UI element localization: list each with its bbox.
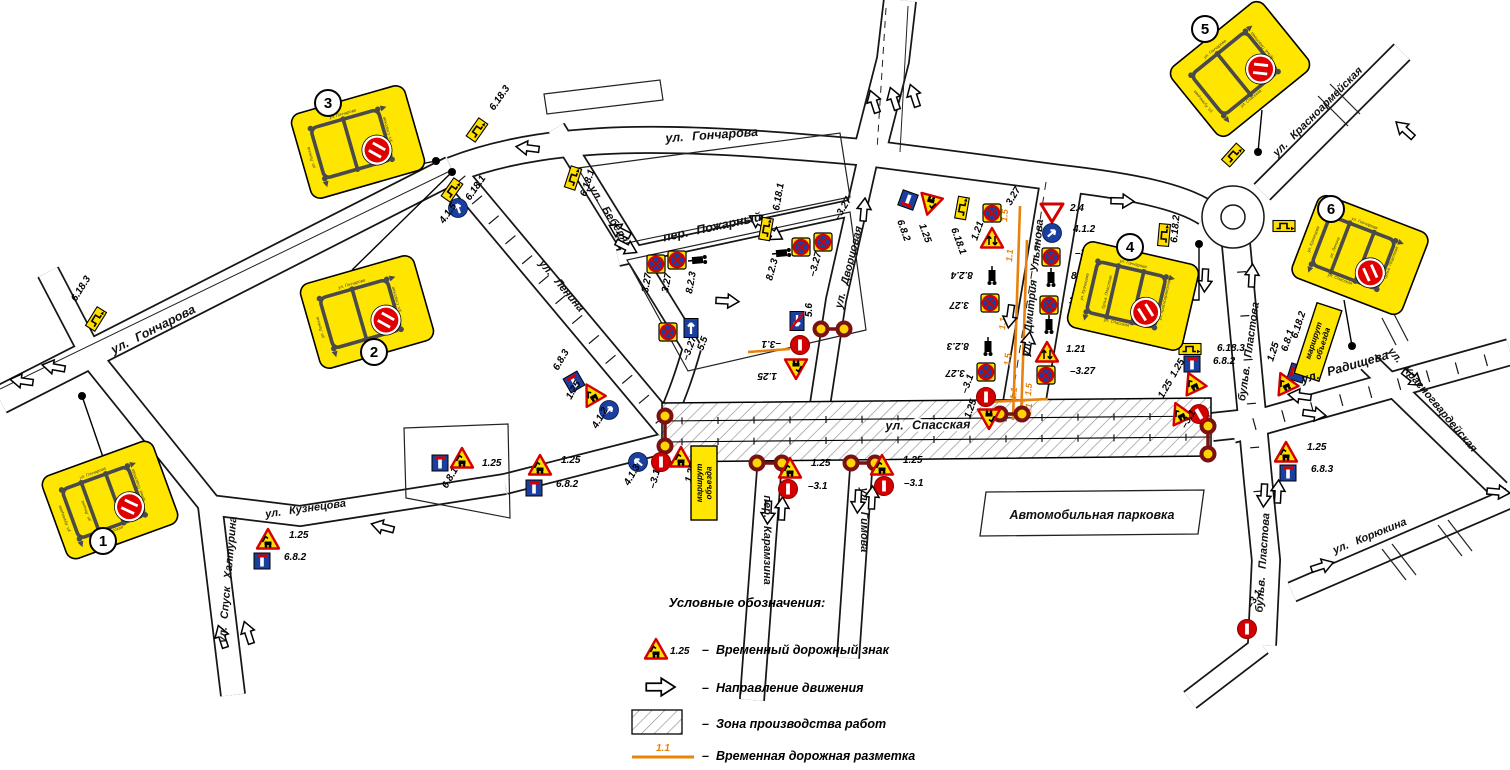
board-leader-dot [1348,342,1356,350]
sign-code-label: 1.25 [482,458,502,469]
sign-code-label: 6.8.3 [1311,464,1334,475]
detour-scheme-board-6: ул. Гончароваул. Кузнецоваул. Ленинабуль… [1289,193,1431,317]
signal-head-icon [815,323,828,336]
direction-arrow [370,517,396,536]
signal-head-icon [659,440,672,453]
board-number: 3 [324,95,332,112]
signal-head-icon [1202,448,1215,461]
sign-code-label: 8.2.4 [950,269,973,280]
sign-3.27-icon [1042,248,1060,266]
sign-code-label: 1.25 [1307,442,1327,453]
sign-8.2.4-icon [988,266,997,285]
sign-code-label: 5.6 [804,303,815,317]
legend-title: Условные обозначения: [669,595,826,610]
sign-6.8.2-icon [254,553,270,569]
detour-route-board: маршрутобъезда [691,446,717,520]
legend-workzone-swatch [632,710,682,734]
sign-3.27-icon [1040,296,1058,314]
svg-text:–: – [702,717,709,731]
sign-code-label: 6.8.2 [894,218,912,243]
sign-1.25-icon [1275,442,1297,462]
legend-item-label: Направление движения [716,681,864,695]
road-tick [1250,447,1259,448]
sign-code-label: –3.1 [808,481,828,492]
sign-code-label: 1.25 [811,458,831,469]
sign-1.25-icon [785,360,807,380]
sign-3.27-icon [977,363,995,381]
sign-code-label: 8.2.3 [946,340,969,351]
road-tick [1247,403,1256,404]
signal-head-icon [838,323,851,336]
temp-marking-label: 1.5 [1023,382,1034,396]
sign-code-label: 3.27 [945,367,965,378]
sign-6.8.2-icon [898,190,919,211]
sign-6.8.1-icon [432,455,448,471]
sign-6.18.1-icon [564,166,581,190]
sign-6.18.3-icon [466,118,488,142]
sign-3.27-icon [647,255,665,273]
sign-code-label: 3.27 [660,272,674,294]
sign-code-label: 6.18.2 [1169,214,1182,243]
legend-arrow-icon [646,678,675,696]
street-label-bebelya: ул. Бебеля [586,183,631,245]
traffic-scheme-page: Автомобильная парковка 1.51.11.11.51.11.… [0,0,1510,770]
sign-6.18.3-icon [86,307,107,331]
sign-code-label: 6.18.1 [771,182,787,212]
sign-1.25-icon [257,529,279,549]
board-leader-dot [1195,240,1203,248]
street-label-spasskaya: ул. Спасская [884,417,971,433]
board-number: 6 [1327,201,1335,218]
sign-code-label: 1.25 [1265,341,1282,363]
sign-code-label: –3.1 [761,338,781,349]
board-leader-line [1344,300,1352,346]
legend-item-label: Зона производства работ [716,717,886,731]
board-number: 5 [1201,21,1209,38]
sign-code-label: 6.18.3 [69,274,93,304]
direction-arrow [904,82,924,108]
direction-arrow [716,293,740,308]
temp-marking-label: 1.1 [1008,387,1019,400]
sign-6.8.3-icon [1280,465,1296,481]
sign-8.2.3-icon [984,337,993,356]
sign-code-label: 8.2.3 [764,257,780,282]
sign-code-label: 1.25 [757,370,777,381]
sign-3.27-icon [659,323,677,341]
sign-5.6-icon [790,312,804,331]
temp-marking-label: 1.1 [1004,249,1015,262]
legend-temp-sign-icon [645,639,667,659]
sign-code-label: 6.8.2 [284,552,307,563]
signal-head-icon [845,457,858,470]
sign-code-label: 1.25 [561,455,581,466]
svg-text:маршрут: маршрут [695,464,704,503]
sign-code-label: 1.25 [1156,378,1175,401]
svg-text:1.1: 1.1 [656,743,670,754]
sign-3.1-icon [652,453,671,472]
sign-code-label: –3.27 [1070,366,1095,377]
sign-code-label: 1.25 [903,455,923,466]
sign-1.21-icon [981,228,1003,248]
sign-code-label: 8.2.3 [684,270,699,294]
sign-code-label: 2.4 [1069,203,1084,214]
sign-code-label: 1.25 [916,222,933,244]
sign-code-label: –3.1 [904,478,924,489]
parking-label: Автомобильная парковка [1009,508,1175,522]
board-number: 4 [1126,239,1135,256]
board-number: 2 [370,344,378,361]
sign-3.27-icon [668,251,686,269]
svg-text:1.25: 1.25 [670,646,690,657]
sign-code-label: 6.8.1 [1279,328,1296,353]
legend-item-3: 1.1–Временная дорожная разметка [632,743,915,763]
legend-item-label: Временный дорожный знак [716,643,890,657]
street-label-karamzina: пер. Карамзина [761,495,773,584]
direction-arrow [238,619,258,645]
sign-6.18.1-icon [1222,143,1245,167]
sign-code-label: 3.27 [949,299,969,310]
sign-1.25-icon [451,448,473,468]
signal-head-icon [1016,408,1029,421]
roundabout [1202,186,1264,248]
sign-6.18.1-icon [955,196,970,220]
sign-3.27-icon [792,238,810,256]
sign-code-label: 6.8.2 [1213,356,1236,367]
sign-code-label: –3.1 [647,468,663,490]
board-number: 1 [99,533,107,550]
sign-6.8.2-icon [526,480,542,496]
board-leader-dot [448,168,456,176]
sign-5.5-icon [684,319,698,338]
svg-text:–: – [702,681,709,695]
sign-code-label: 3.27 [1004,185,1023,208]
legend-item-1: –Направление движения [646,678,864,696]
scheme-canvas: Автомобильная парковка 1.51.11.11.51.11.… [0,0,1510,770]
sign-code-label: 1.25 [289,530,309,541]
signal-head-icon [751,457,764,470]
svg-text:–: – [702,643,709,657]
temp-marking-label: 1.5 [1002,352,1013,366]
sign-code-label: 6.8.2 [556,479,579,490]
sign-code-label: 6.8.3 [551,347,572,372]
sign-code-label: 1.21 [1066,344,1086,355]
detour-scheme-board-5: ул. Гончароваул. Кузнецовабульв. Пластов… [1166,0,1313,140]
sign-3.1-icon [977,388,996,407]
sign-code-label: 1.21 [969,220,986,242]
svg-text:–: – [702,749,709,763]
sign-code-label: 6.18.1 [948,226,968,256]
sign-3.1-icon [791,336,810,355]
direction-arrow [1391,117,1417,143]
board-leader-dot [78,392,86,400]
road-tick [1237,272,1246,273]
signal-head-icon [659,410,672,423]
sign-3.1-icon [779,480,798,499]
sign-3.1-icon [1238,620,1257,639]
sign-1.25-icon [917,193,943,218]
sign-3.27-icon [983,204,1001,222]
parking-area: Автомобильная парковка [980,490,1204,536]
sign-8.2.3-icon [772,248,792,259]
board-leader-dot [432,157,440,165]
legend-item-label: Временная дорожная разметка [716,749,915,763]
sign-8.2.3-icon [688,255,708,266]
sign-3.27-icon [981,294,999,312]
legend-item-2: –Зона производства работ [632,710,886,734]
sign-code-label: 6.18.3 [1217,343,1245,354]
legend: 1.25–Временный дорожный знак–Направление… [632,639,915,763]
board-leader-line [1258,110,1262,152]
sign-code-label: 6.18.3 [487,83,512,112]
board-leader-dot [1254,148,1262,156]
sign-6.18.3-icon [1273,221,1295,232]
sign-3.27-icon [814,233,832,251]
sign-3.27-icon [1037,366,1055,384]
sign-code-label: 4.1.2 [1072,224,1096,235]
svg-text:объезда: объезда [705,466,714,499]
board-leader-line [82,396,105,463]
sign-3.1-icon [875,477,894,496]
street-label-gimova: ул. Гимова [858,487,870,553]
